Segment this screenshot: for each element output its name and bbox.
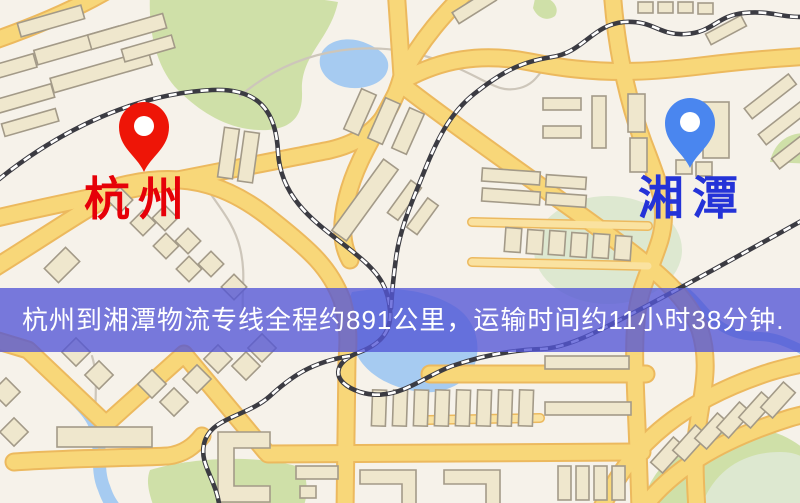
route-info-banner: 杭州到湘潭物流专线全程约891公里，运输时间约11小时38分钟. — [0, 288, 800, 352]
map-canvas — [0, 0, 800, 503]
route-map-image: 杭州 湘潭 杭州到湘潭物流专线全程约891公里，运输时间约11小时38分钟. — [0, 0, 800, 503]
destination-city-label: 湘潭 — [622, 176, 762, 222]
route-info-text: 杭州到湘潭物流专线全程约891公里，运输时间约11小时38分钟. — [0, 288, 785, 352]
origin-city-label: 杭州 — [68, 177, 208, 223]
